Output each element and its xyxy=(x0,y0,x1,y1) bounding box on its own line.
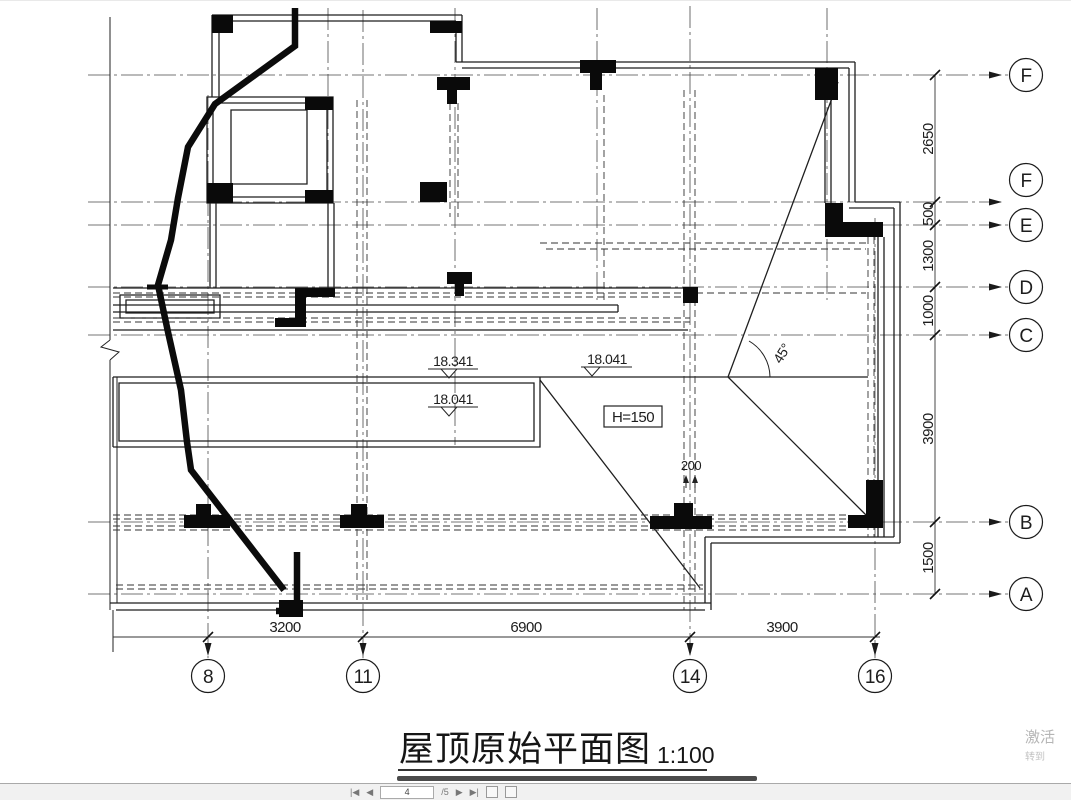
svg-text:F: F xyxy=(1020,66,1031,87)
page-navigation: |◀ ◀ /5 ▶ ▶| xyxy=(350,785,517,799)
svg-text:D: D xyxy=(1019,278,1032,299)
next-page-button[interactable]: ▶ xyxy=(456,786,463,799)
drawing-title-text: 屋顶原始平面图 xyxy=(399,730,651,769)
col-grid-labels: 8 11 14 16 xyxy=(203,667,885,688)
svg-text:14: 14 xyxy=(680,667,701,688)
svg-text:A: A xyxy=(1020,585,1033,606)
fit-page-view-icon[interactable] xyxy=(505,786,517,798)
activation-watermark: 激活 转到 xyxy=(1025,727,1071,765)
page-count-label: /5 xyxy=(441,786,449,799)
svg-text:B: B xyxy=(1020,513,1032,534)
single-page-view-icon[interactable] xyxy=(486,786,498,798)
level-label-3: 18.041 xyxy=(433,391,474,407)
view-break-edge xyxy=(101,17,119,652)
svg-text:3200: 3200 xyxy=(269,619,301,636)
bottom-dimension-chain: 3200 6900 3900 xyxy=(113,619,880,656)
svg-text:8: 8 xyxy=(203,667,213,688)
last-page-button[interactable]: ▶| xyxy=(470,786,479,799)
svg-text:E: E xyxy=(1020,216,1032,237)
svg-text:2650: 2650 xyxy=(920,123,937,155)
svg-text:H=150: H=150 xyxy=(612,409,654,426)
viewer-window: 18.341 18.041 18.041 H=150 45° 200 2650 … xyxy=(0,0,1071,800)
svg-text:3900: 3900 xyxy=(920,413,937,445)
svg-text:C: C xyxy=(1019,326,1032,347)
level-label-1: 18.341 xyxy=(433,353,474,369)
height-note: H=150 xyxy=(604,406,662,427)
horizontal-scrollbar-thumb[interactable] xyxy=(397,776,757,781)
drawing-scale: 1:100 xyxy=(657,742,715,768)
viewer-bottom-bar xyxy=(0,783,1071,800)
svg-text:200: 200 xyxy=(681,458,701,473)
watermark-line-2: 转到 xyxy=(1025,750,1071,765)
roof-plan-drawing: 18.341 18.041 18.041 H=150 45° 200 2650 … xyxy=(0,0,1071,782)
column-marks xyxy=(184,15,883,617)
gap-dimension: 200 xyxy=(681,458,701,488)
watermark-line-1: 激活 xyxy=(1025,727,1071,750)
svg-text:6900: 6900 xyxy=(510,619,542,636)
page-number-input[interactable] xyxy=(380,786,434,799)
svg-text:1000: 1000 xyxy=(920,295,937,327)
svg-text:1300: 1300 xyxy=(920,240,937,272)
grid-lines xyxy=(88,6,1009,658)
svg-text:F: F xyxy=(1020,171,1031,192)
svg-text:1500: 1500 xyxy=(920,542,937,574)
svg-text:500: 500 xyxy=(920,202,937,226)
right-dimension-chain: 2650 500 1300 1000 3900 1500 xyxy=(920,70,1002,599)
row-grid-labels: F F E D C B A xyxy=(1019,66,1033,606)
svg-text:3900: 3900 xyxy=(766,619,798,636)
angle-note: 45° xyxy=(770,341,794,366)
level-label-2: 18.041 xyxy=(587,351,628,367)
first-page-button[interactable]: |◀ xyxy=(350,786,359,799)
svg-text:16: 16 xyxy=(865,667,885,688)
svg-text:11: 11 xyxy=(354,667,373,688)
col-grid-bubbles xyxy=(192,660,892,693)
drawing-title: 屋顶原始平面图 1:100 xyxy=(398,730,715,770)
previous-page-button[interactable]: ◀ xyxy=(366,786,373,799)
